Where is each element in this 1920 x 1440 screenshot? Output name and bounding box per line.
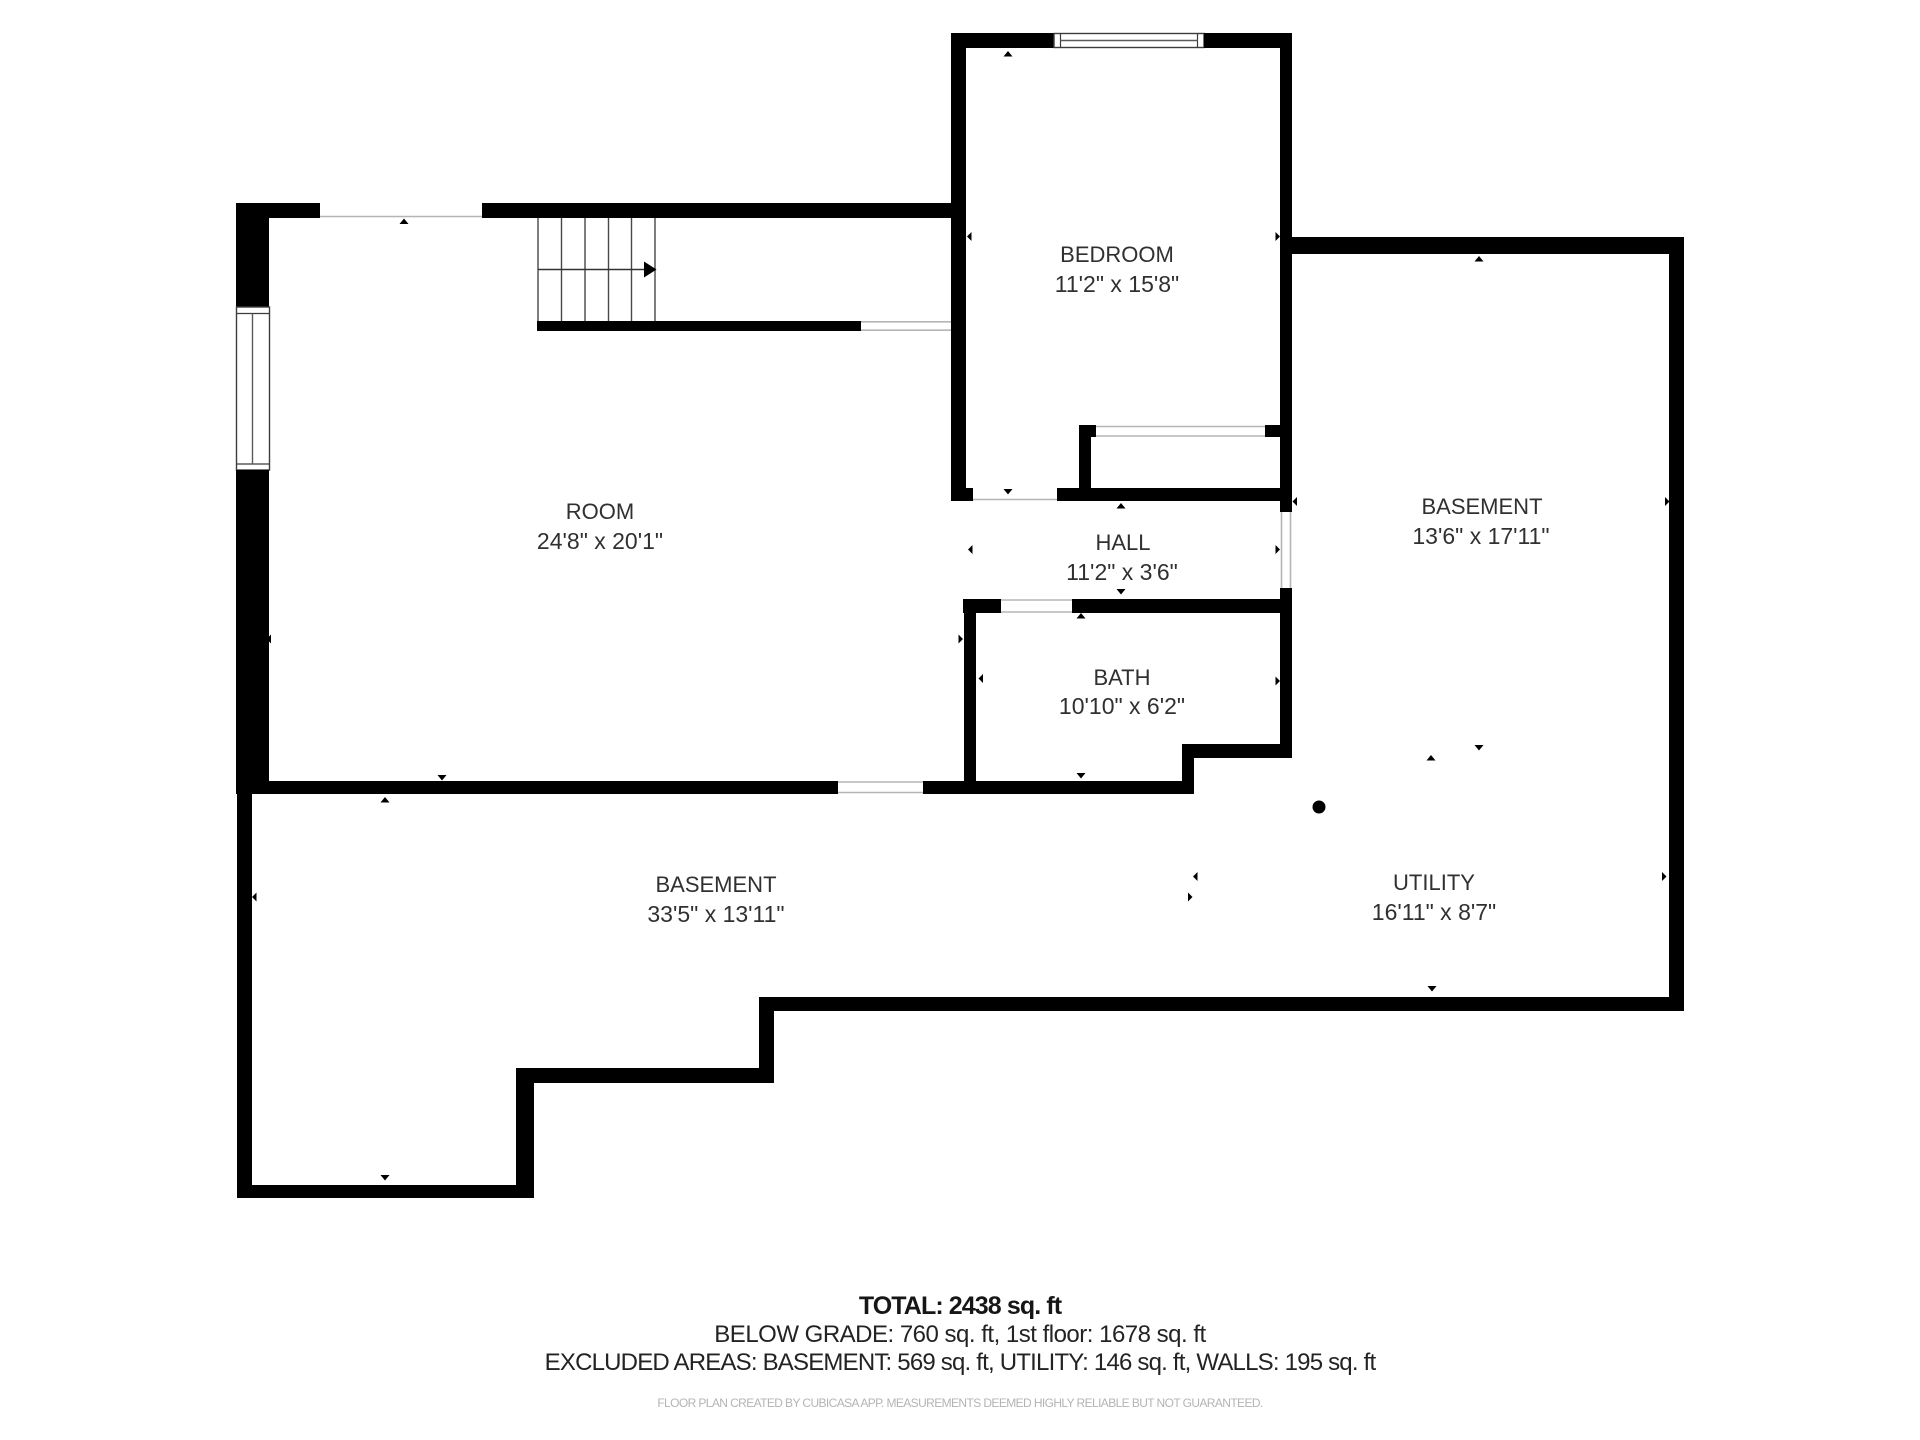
svg-text:EXCLUDED AREAS: BASEMENT: 569: EXCLUDED AREAS: BASEMENT: 569 sq. ft, UT…	[545, 1349, 1377, 1376]
svg-text:BELOW GRADE: 760 sq. ft, 1st f: BELOW GRADE: 760 sq. ft, 1st floor: 1678…	[714, 1321, 1206, 1348]
svg-text:16'11" x 8'7": 16'11" x 8'7"	[1372, 899, 1496, 925]
svg-text:TOTAL: 2438 sq. ft: TOTAL: 2438 sq. ft	[859, 1292, 1063, 1320]
svg-text:13'6" x 17'11": 13'6" x 17'11"	[1412, 523, 1549, 549]
svg-text:ROOM: ROOM	[566, 499, 634, 524]
svg-text:33'5" x 13'11": 33'5" x 13'11"	[647, 901, 784, 927]
svg-text:FLOOR PLAN CREATED BY CUBICASA: FLOOR PLAN CREATED BY CUBICASA APP. MEAS…	[657, 1396, 1263, 1410]
svg-text:HALL: HALL	[1095, 530, 1150, 555]
svg-text:UTILITY: UTILITY	[1393, 870, 1475, 895]
svg-text:BATH: BATH	[1093, 665, 1150, 690]
svg-text:BEDROOM: BEDROOM	[1060, 242, 1174, 267]
svg-text:10'10" x 6'2": 10'10" x 6'2"	[1059, 693, 1185, 719]
svg-text:BASEMENT: BASEMENT	[655, 872, 776, 897]
svg-text:24'8" x 20'1": 24'8" x 20'1"	[537, 528, 663, 554]
svg-text:BASEMENT: BASEMENT	[1421, 494, 1542, 519]
svg-text:11'2" x 15'8": 11'2" x 15'8"	[1055, 271, 1179, 297]
svg-text:11'2" x 3'6": 11'2" x 3'6"	[1066, 559, 1178, 585]
